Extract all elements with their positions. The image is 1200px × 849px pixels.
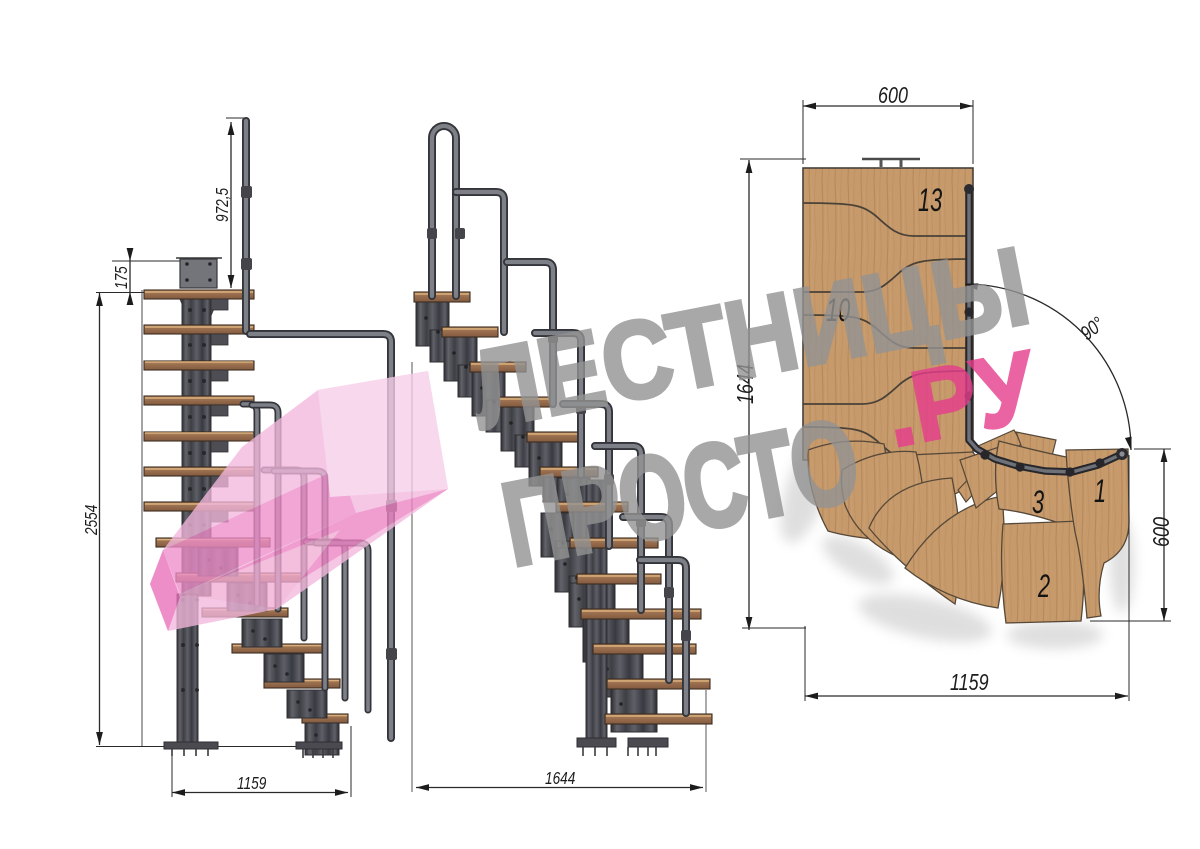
svg-text:2: 2 (1037, 568, 1050, 604)
svg-text:1644: 1644 (545, 770, 576, 789)
svg-text:600: 600 (1149, 517, 1175, 547)
svg-text:175: 175 (113, 266, 132, 289)
svg-text:1159: 1159 (237, 775, 267, 794)
svg-text:1159: 1159 (950, 670, 989, 696)
svg-text:1: 1 (1094, 473, 1106, 509)
svg-text:3: 3 (1032, 484, 1044, 520)
svg-text:2554: 2554 (83, 504, 102, 535)
svg-text:600: 600 (878, 83, 908, 109)
svg-text:13: 13 (918, 182, 942, 218)
svg-text:972,5: 972,5 (214, 188, 233, 222)
